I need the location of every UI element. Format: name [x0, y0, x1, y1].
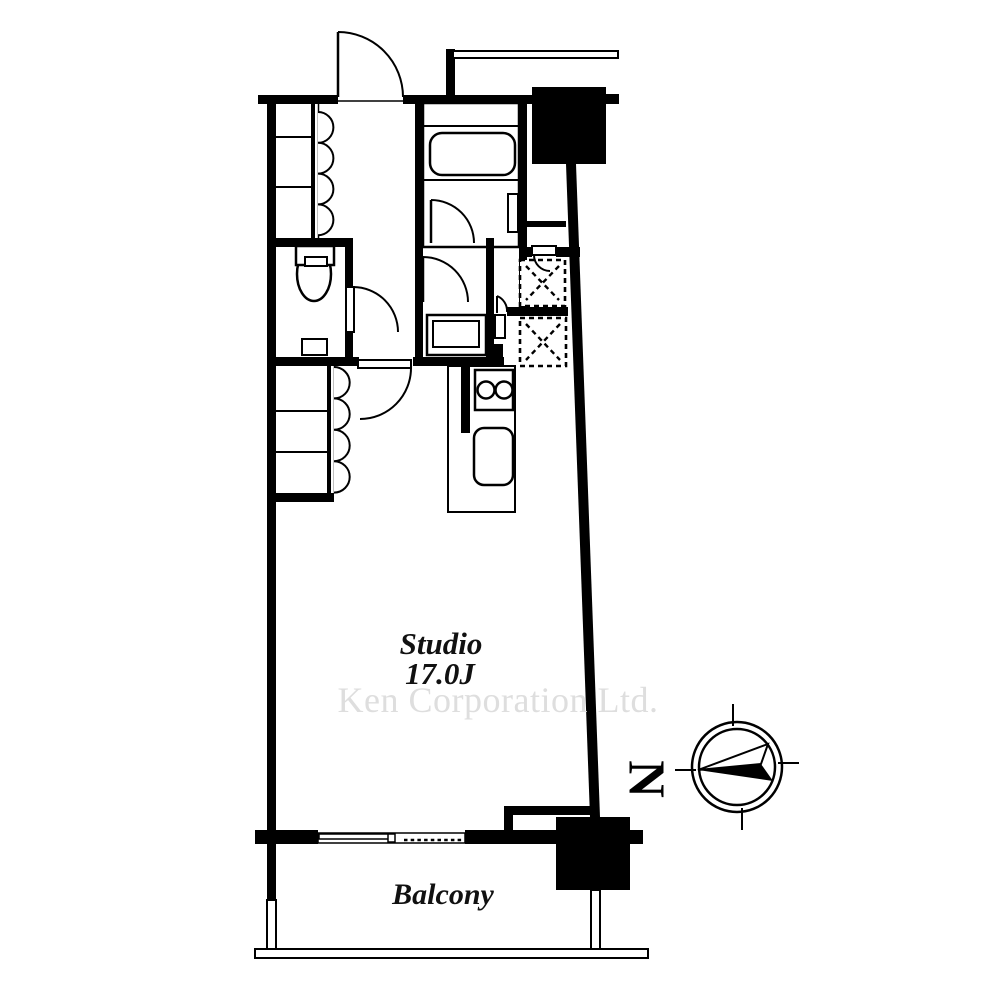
pipe-space-panel [495, 315, 505, 338]
balcony-label: Balcony [391, 878, 494, 911]
upper-closet [276, 104, 333, 238]
wall-fridge-left [494, 344, 503, 366]
bathroom-side-panel [508, 194, 518, 232]
compass: N [618, 704, 800, 830]
wall-step-vertical [504, 806, 513, 834]
lower-closet [276, 366, 350, 493]
wall-bottom-left [255, 830, 318, 844]
north-label: N [618, 760, 675, 798]
floor-plan-drawing: Studio 17.0J Ken Corporation Ltd. Balcon… [0, 0, 1000, 1000]
toilet-lid [305, 257, 327, 266]
wall-step-horizontal [504, 806, 590, 815]
hall-studio-door-leaf [358, 360, 411, 368]
toilet-door-swing [353, 287, 398, 332]
toilet-shelf [302, 339, 327, 355]
top-pillar [532, 87, 606, 164]
floor-plan-page: Studio 17.0J Ken Corporation Ltd. Balcon… [0, 0, 1000, 1000]
kitchen-counter [448, 366, 515, 512]
kitchen-sink [474, 428, 513, 485]
entrance-door-swing [338, 32, 403, 97]
wall-hall-bottom-left [267, 357, 359, 366]
balcony-right-post [591, 890, 600, 949]
wall-stub-right-of-pillar [606, 94, 619, 104]
window-stile [388, 834, 395, 842]
kitchen [448, 366, 515, 512]
stove-burner [478, 382, 495, 399]
closet-divider [311, 104, 315, 238]
closet-divider [327, 366, 331, 493]
wall-lower-closet-bottom [267, 493, 334, 502]
balcony-left-post [267, 900, 276, 949]
bathroom [423, 103, 519, 247]
wall-washer-left [519, 247, 532, 257]
wall-between-appliance-spaces [507, 307, 568, 316]
washroom [423, 257, 486, 355]
window-left-pane [319, 834, 389, 839]
bathroom-door-swing [431, 200, 474, 243]
wall-washroom-bottom [413, 357, 504, 366]
hall-studio-door-swing [360, 368, 411, 419]
wall-ps-divider [527, 221, 566, 227]
bathtub [430, 133, 515, 175]
stove-burner [496, 382, 513, 399]
bottom-pillar [556, 817, 630, 890]
folding-door-arcs [334, 367, 350, 493]
washbasin [433, 321, 479, 347]
wall-toilet-right-upper [345, 238, 353, 287]
sliding-window [318, 833, 465, 843]
washer-door-leaf [532, 246, 556, 255]
balcony-rail [255, 949, 648, 958]
washroom-door-swing [423, 257, 468, 302]
top-rail [453, 51, 618, 58]
folding-door-arcs [318, 112, 333, 235]
wall-kitchen-stub [461, 366, 470, 433]
toilet-door-leaf [346, 287, 354, 332]
ps-door-swing [497, 296, 507, 312]
watermark: Ken Corporation Ltd. [338, 680, 659, 720]
